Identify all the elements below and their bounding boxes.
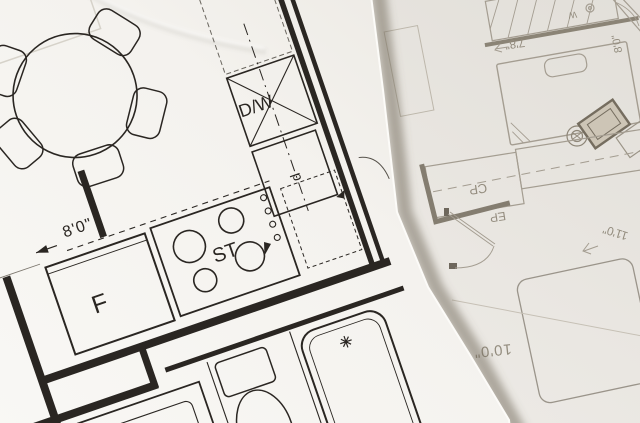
panel-label: EP — [489, 209, 507, 225]
blueprint-svg: 7'8" 8'0" W CP EP — [0, 0, 640, 423]
dim-7-8: 7'8" — [504, 36, 526, 53]
blueprint-photo: 7'8" 8'0" W CP EP — [0, 0, 640, 423]
closet-label: CP — [468, 180, 488, 198]
